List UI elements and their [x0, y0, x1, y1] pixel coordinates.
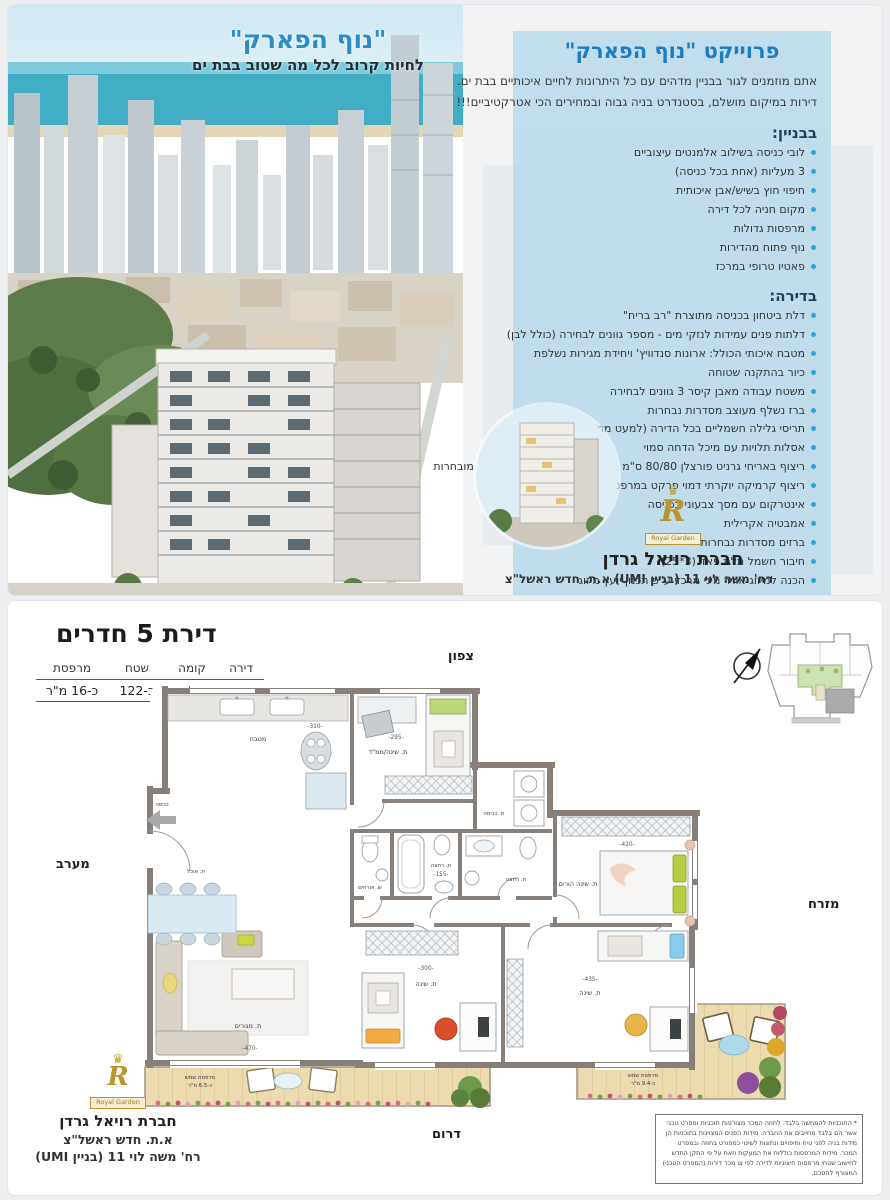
bed3-dim: -435- [582, 977, 597, 983]
floorplan-sheet: דירת 5 חדרים דירהקומהשטחמרפסת 395כ-122כ-… [8, 601, 882, 1195]
entrance-label: כניסה [155, 802, 168, 808]
building-section-title: בבניין: [527, 124, 817, 142]
company-name: חברת רויאל גרדן [30, 1112, 206, 1130]
floorplan-drawing: -310- מטבח -295- ת. שינה/ממ"ד ת. כביסה ש… [130, 673, 790, 1128]
building-feature-item: פאטיו טרופי במרכז [527, 259, 817, 274]
royal-garden-logo: ♛ R Royal Garden [573, 485, 773, 545]
building-feature-list: לובי כניסה בשילוב אלמנטים עיצוביים3 מעלי… [527, 145, 817, 274]
building-feature-item: חיפוי חוץ בשיש/אבן איכותית [527, 183, 817, 198]
photo-caption: "נוף הפארק" לחיות קרוב לכל מה שטוב בבת י… [158, 25, 458, 74]
living-dim: -470- [242, 1046, 257, 1052]
company-address: רח' משה לוי 11 (בניין UMI) א.ת. חדש ראשל… [573, 572, 773, 586]
aerial-photo: "נוף הפארק" לחיות קרוב לכל מה שטוב בבת י… [8, 5, 463, 595]
balcony-right-label: מרפסת שמש [628, 1073, 658, 1079]
project-title: פרוייקט "נוף הפארק" [527, 39, 817, 63]
spec-value-cell: כ-16 מ"ר [36, 680, 108, 701]
balcony-right-area: כ-9.4 מ"ר [631, 1081, 655, 1087]
developer-block-floorplan: ♛ R Royal Garden חברת רויאל גרדן א.ת. חד… [30, 1053, 206, 1164]
mamad-label: ת. שינה/ממ"ד [369, 748, 408, 756]
company-name: חברת רויאל גרדן [573, 549, 773, 570]
brochure-page: "נוף הפארק" לחיות קרוב לכל מה שטוב בבת י… [0, 0, 890, 1200]
logo-label: Royal Garden [645, 533, 701, 545]
apartment-feature-item: נקודות טלוויזיה וטלפון בכל חדר [527, 592, 817, 595]
legal-disclaimer: * התוכניות להמחשה בלבד. לחוזה המכר מצורפ… [655, 1114, 863, 1184]
apartment-feature-item: מטבח איכותי הכולל: ארונות סנדוויץ' ויחיד… [527, 346, 817, 361]
info-panel-side: פרוייקט "נוף הפארק" אתם מוזמנים לגור בבנ… [463, 5, 882, 595]
apartment-feature-item: משטח עבודה מאבן קיסר 3 גוונים לבחירה [527, 384, 817, 399]
building-feature-item: לובי כניסה בשילוב אלמנטים עיצוביים [527, 145, 817, 160]
bed2-label: ת. שינה [415, 980, 436, 988]
logo-label: Royal Garden [90, 1097, 146, 1109]
living-label: ת. מגורים [235, 1022, 262, 1030]
project-intro-line1: אתם מוזמנים לגור בבניין מדהים עם כל היתר… [527, 71, 817, 92]
master-dim: -420- [619, 842, 634, 848]
company-street: רח' משה לוי 11 (בניין UMI) [30, 1149, 206, 1164]
developer-block: ♛ R Royal Garden חברת רויאל גרדן רח' משה… [573, 485, 773, 586]
royal-garden-logo: ♛ R Royal Garden [30, 1053, 206, 1109]
logo-monogram: R [30, 1066, 206, 1089]
floorplan-title: דירת 5 חדרים [56, 619, 217, 648]
apartment-feature-item: דלת ביטחון בכניסה מתוצרת "רב בריח" [527, 308, 817, 323]
project-intro-line2: דירות במיקום מושלם, בסטנדרט בניה גבוה וב… [527, 92, 817, 113]
laundry-label: ת. כביסה [483, 811, 505, 817]
photo-caption-subtitle: לחיות קרוב לכל מה שטוב בבת ים [158, 56, 458, 74]
kitchen-dim: -310- [307, 724, 322, 730]
direction-south: דרום [432, 1127, 461, 1142]
bath1-label: ת. רחצה [431, 863, 452, 869]
dining-label: ת. אוכל [187, 869, 205, 875]
bath2-label: ת. רחצה [506, 877, 527, 883]
bed2-dim: -300- [418, 966, 433, 972]
direction-west: מערב [56, 857, 90, 872]
bath1-dim: -155- [433, 872, 448, 878]
direction-north: צפון [448, 649, 474, 664]
building-feature-item: נוף פתוח מהדירות [527, 240, 817, 255]
adjacent-unit [826, 689, 854, 713]
logo-monogram: R [573, 498, 773, 525]
guest-wc-label: ש. אורחים [358, 885, 382, 891]
apartment-feature-item: כיור בהתקנה שטוחה [527, 365, 817, 380]
bed3-label: ת. שינה [579, 989, 600, 997]
direction-east: מזרח [808, 897, 839, 912]
spec-header-cell: מרפסת [36, 659, 108, 679]
company-area: א.ת. חדש ראשל"צ [30, 1132, 206, 1147]
building-feature-item: מרפסות גדולות [527, 221, 817, 236]
mamad-dim: -295- [388, 735, 403, 741]
building-feature-item: מקום חניה לכל דירה [527, 202, 817, 217]
top-brochure-card: "נוף הפארק" לחיות קרוב לכל מה שטוב בבת י… [8, 5, 882, 595]
kitchen-label: מטבח [250, 735, 267, 743]
master-label: ת. שינה הורים [559, 880, 598, 888]
apartment-section-title: בדירה: [527, 287, 817, 305]
photo-caption-title: "נוף הפארק" [158, 25, 458, 54]
apartment-feature-item: דלתות פנים עמידות לנזקי מים - מספר גווני… [527, 327, 817, 342]
building-feature-item: 3 מעליות (אחת בכל כניסה) [527, 164, 817, 179]
aerial-photo-art [8, 5, 463, 595]
